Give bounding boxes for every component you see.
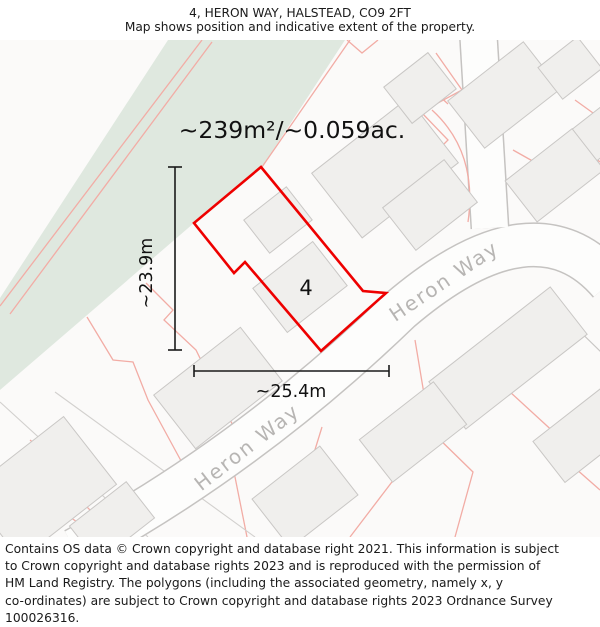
copyright-footer: Contains OS data © Crown copyright and d… [0, 537, 600, 625]
footer-line: co-ordinates) are subject to Crown copyr… [0, 593, 600, 610]
property-map-page: 4, HERON WAY, HALSTEAD, CO9 2FT Map show… [0, 0, 600, 625]
page-header: 4, HERON WAY, HALSTEAD, CO9 2FT Map show… [0, 0, 600, 40]
footer-line: HM Land Registry. The polygons (includin… [0, 575, 600, 592]
map-canvas: ~239m²/~0.059ac. 4 ~23.9m ~25.4m Heron W… [0, 40, 600, 537]
height-dimension-label: ~23.9m [137, 238, 157, 309]
footer-line: to Crown copyright and database rights 2… [0, 558, 600, 575]
footer-line: 100026316. [0, 610, 600, 627]
footer-line: Contains OS data © Crown copyright and d… [0, 541, 600, 558]
map-svg: ~239m²/~0.059ac. 4 ~23.9m ~25.4m Heron W… [0, 40, 600, 537]
page-title: 4, HERON WAY, HALSTEAD, CO9 2FT [0, 0, 600, 20]
width-dimension-label: ~25.4m [256, 382, 327, 402]
page-subtitle: Map shows position and indicative extent… [0, 20, 600, 34]
plot-number-label: 4 [299, 276, 312, 300]
area-label: ~239m²/~0.059ac. [179, 116, 406, 144]
